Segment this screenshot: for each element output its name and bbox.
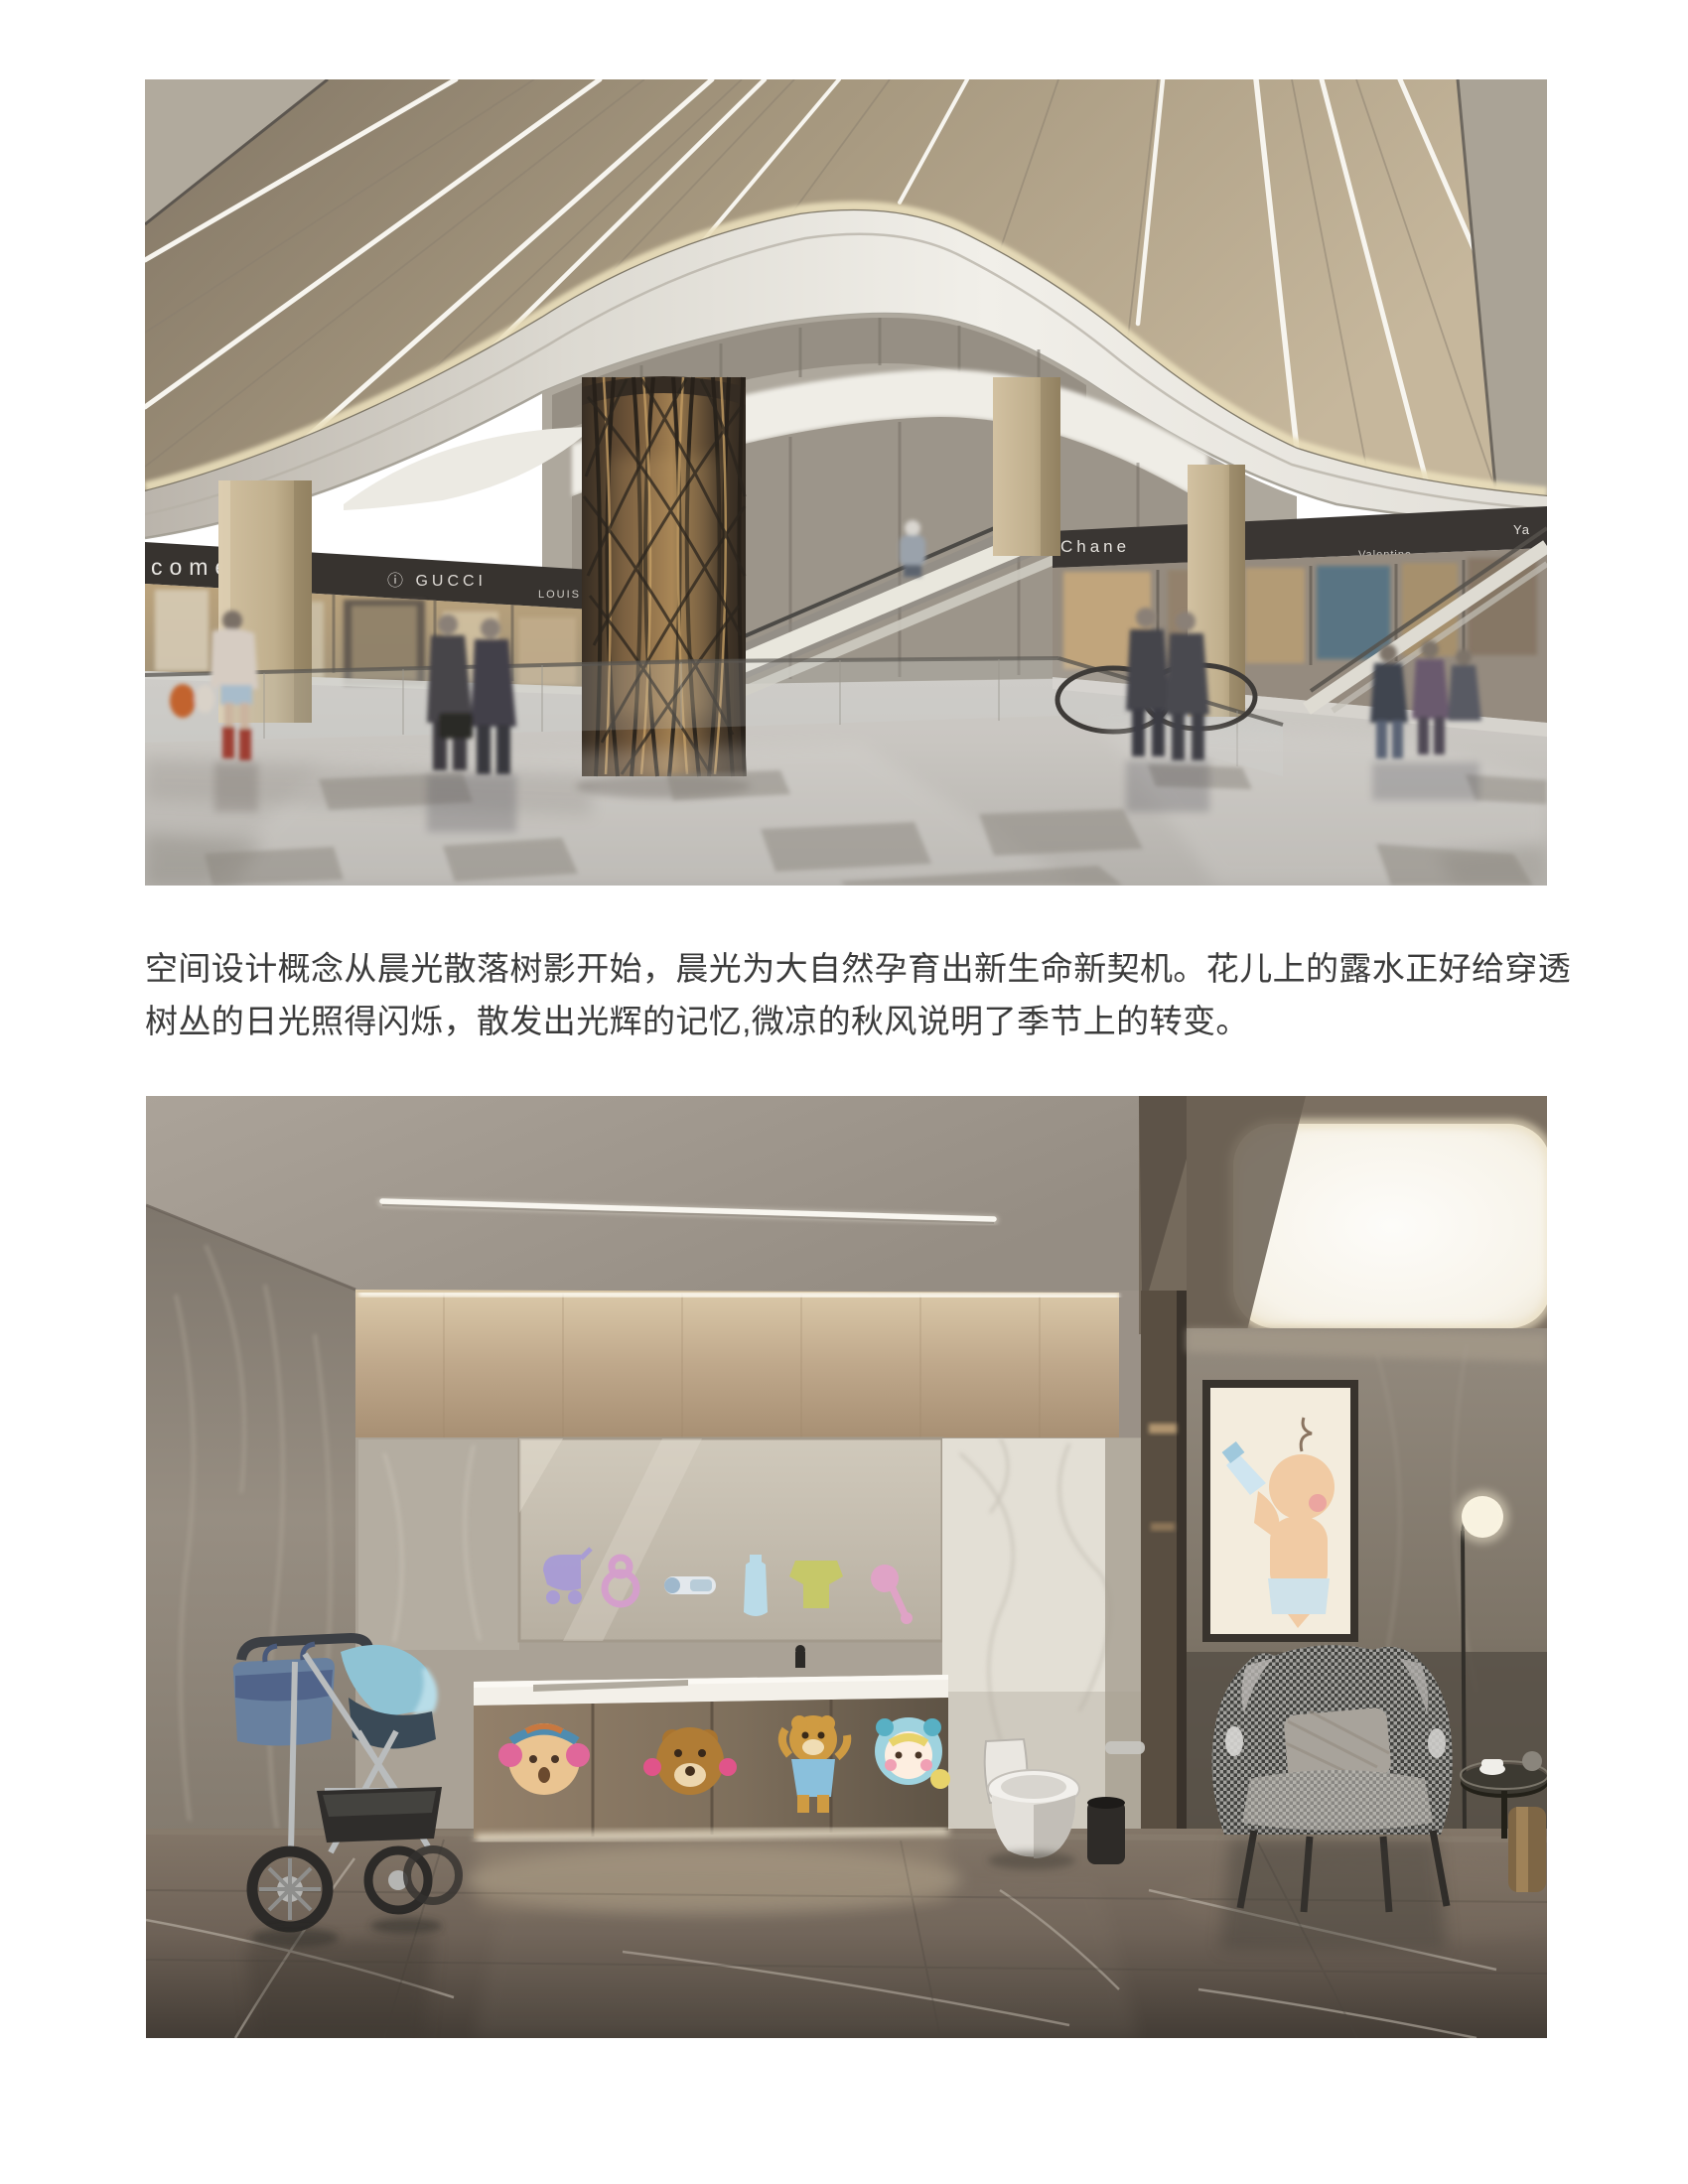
svg-text:ⓘ GUCCI: ⓘ GUCCI — [387, 572, 487, 590]
svg-text:LOUIS: LOUIS — [538, 589, 581, 601]
svg-text:Chane: Chane — [1060, 537, 1130, 556]
svg-text:Ya: Ya — [1513, 522, 1530, 537]
